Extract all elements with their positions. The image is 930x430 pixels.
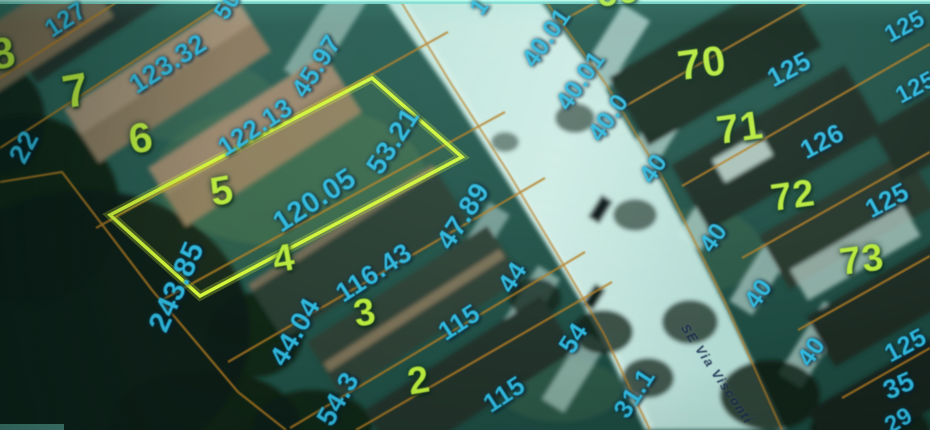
map-view[interactable]: SE Via Visconti 87654326970717273127123.…: [0, 0, 930, 430]
aerial-scenery: [0, 0, 930, 430]
